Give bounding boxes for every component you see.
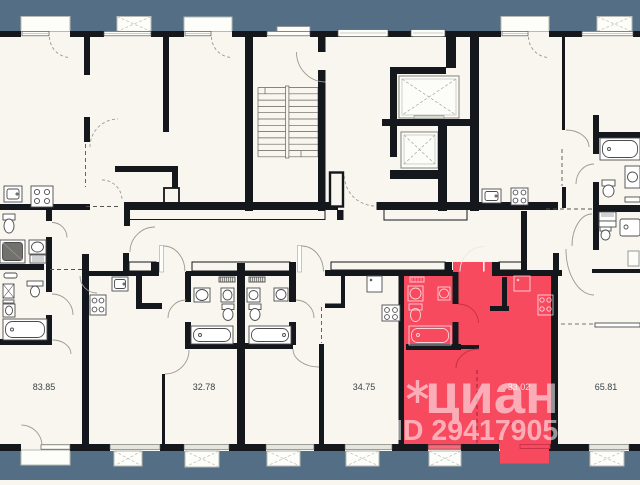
svg-text:32.78: 32.78: [193, 382, 216, 392]
svg-text:83.85: 83.85: [33, 382, 56, 392]
svg-text:34.75: 34.75: [353, 382, 376, 392]
svg-text:ID 29417905: ID 29417905: [395, 415, 558, 447]
svg-text:65.81: 65.81: [595, 382, 618, 392]
